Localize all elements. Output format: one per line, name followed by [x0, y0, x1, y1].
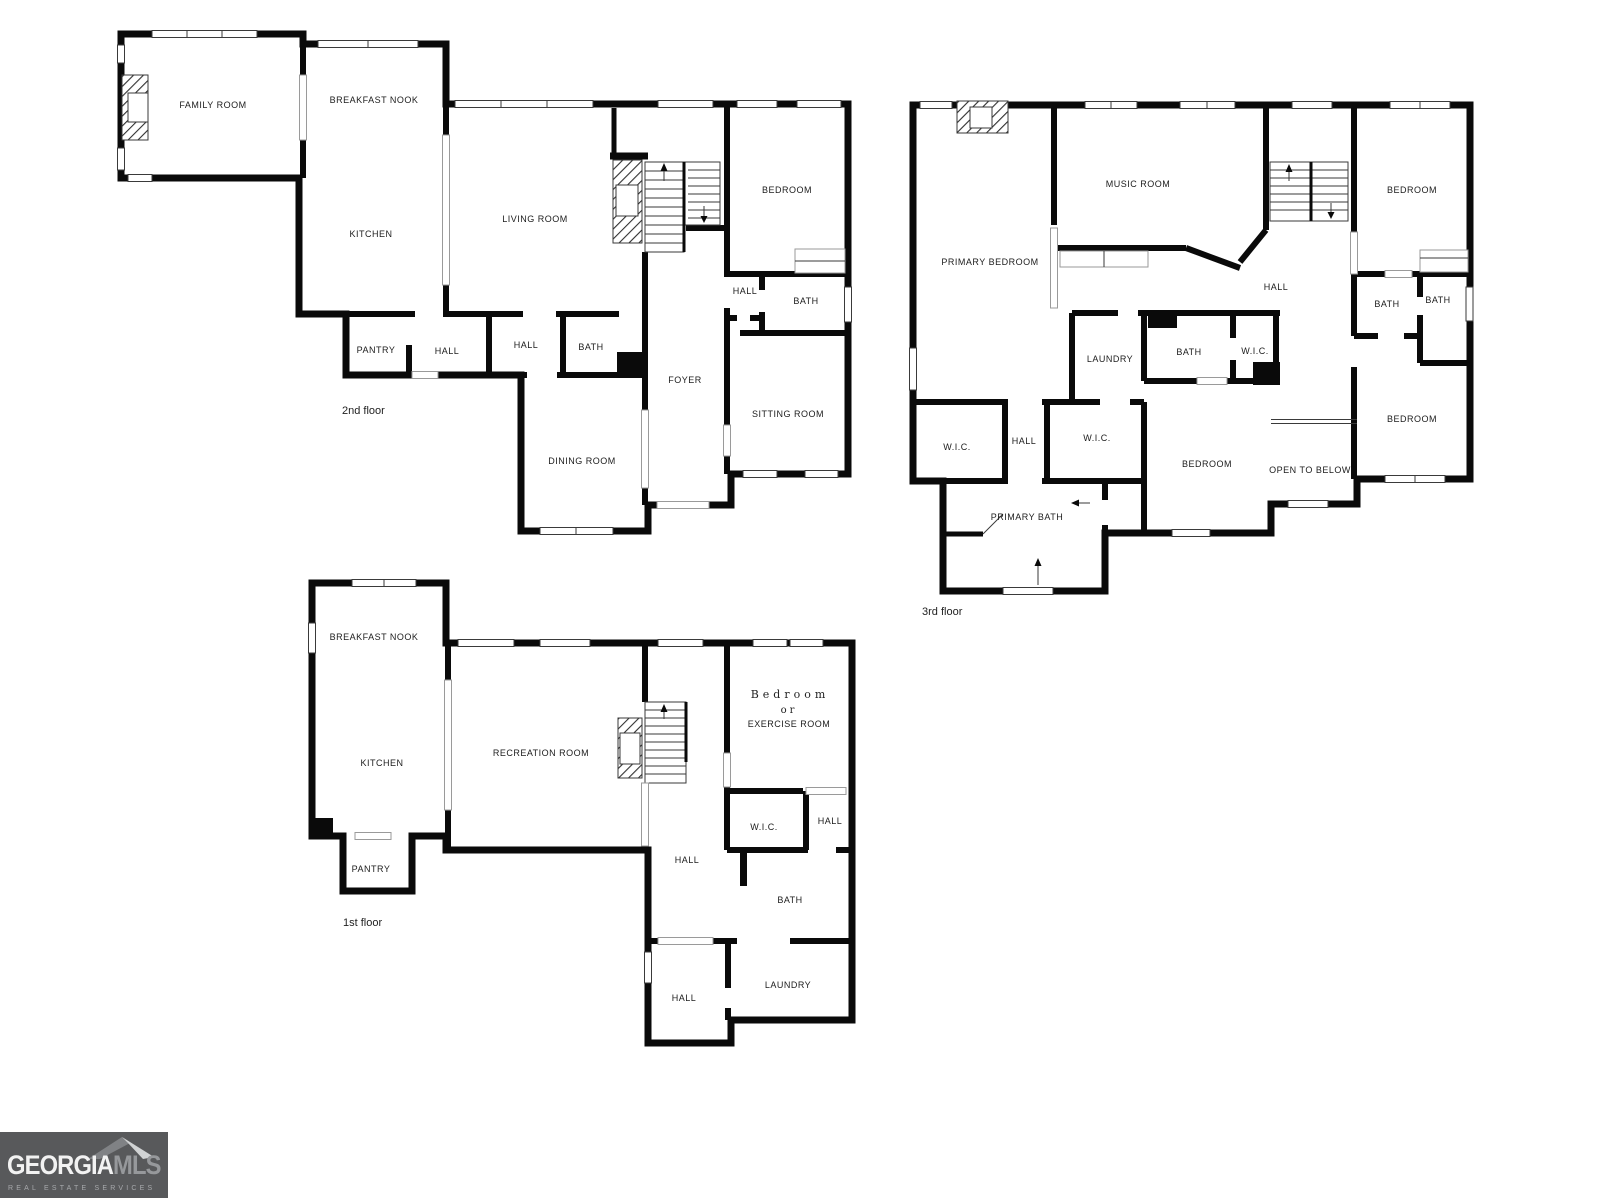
room-label-bath-center: BATH — [1176, 347, 1201, 357]
room-labels-1st: BREAKFAST NOOK KITCHEN PANTRY RECREATION… — [330, 632, 843, 1003]
logo-brand: GEORGIAMLS — [7, 1152, 161, 1179]
room-label-dining-room: DINING ROOM — [548, 456, 616, 466]
room-label-bath-bedroom: BATH — [793, 296, 818, 306]
floor-plan-canvas: FAMILY ROOM BREAKFAST NOOK KITCHEN LIVIN… — [0, 0, 1600, 1200]
room-label-pantry: PANTRY — [357, 345, 396, 355]
floor-plan-3rd: PRIMARY BEDROOM MUSIC ROOM BEDROOM HALL … — [910, 101, 1474, 618]
walls-1st — [310, 583, 852, 1043]
room-label-wic: W.I.C. — [750, 822, 778, 832]
room-label-laundry: LAUNDRY — [765, 980, 811, 990]
room-label-bedroom: BEDROOM — [762, 185, 812, 195]
room-label-bath: BATH — [578, 342, 603, 352]
room-label-hall-e: HALL — [818, 816, 843, 826]
room-label-open-to-below: OPEN TO BELOW — [1269, 465, 1351, 475]
floor-plan-2nd: FAMILY ROOM BREAKFAST NOOK KITCHEN LIVIN… — [118, 31, 852, 535]
room-label-kitchen: KITCHEN — [360, 758, 403, 768]
room-label-primary-bath: PRIMARY BATH — [991, 512, 1064, 522]
stairs-3rd — [1270, 162, 1348, 221]
room-label-living-room: LIVING ROOM — [502, 214, 568, 224]
room-label-sitting-room: SITTING ROOM — [752, 409, 824, 419]
room-label-hall-a: HALL — [435, 346, 460, 356]
room-label-kitchen: KITCHEN — [349, 229, 392, 239]
floor-label-1st: 1st floor — [343, 917, 382, 929]
room-labels-3rd: PRIMARY BEDROOM MUSIC ROOM BEDROOM HALL … — [922, 179, 1451, 618]
room-label-primary-bedroom: PRIMARY BEDROOM — [941, 257, 1038, 267]
room-label-hall: HALL — [1264, 282, 1289, 292]
room-label-foyer: FOYER — [668, 375, 702, 385]
stairs-down-arrow-icon — [1328, 212, 1335, 219]
room-label-bedroom-or-line1: Bedroom — [751, 688, 830, 701]
room-label-bath-e2: BATH — [1425, 295, 1450, 305]
room-label-wic-mid: W.I.C. — [1083, 433, 1111, 443]
stairs-down-arrow-icon — [701, 216, 708, 223]
room-label-hall-s: HALL — [672, 993, 697, 1003]
room-label-hall-b: HALL — [514, 340, 539, 350]
georgia-mls-logo: GEORGIAMLS REAL ESTATE SERVICES — [0, 1132, 168, 1198]
stairs-1st — [618, 702, 686, 783]
room-label-breakfast-nook: BREAKFAST NOOK — [330, 632, 419, 642]
room-label-family-room: FAMILY ROOM — [179, 100, 246, 110]
room-label-wic-center: W.I.C. — [1241, 346, 1269, 356]
room-label-bedroom-ne: BEDROOM — [1387, 185, 1437, 195]
room-label-hall-w: HALL — [1012, 436, 1037, 446]
stairs-up-arrow-icon — [1286, 164, 1293, 172]
stairs-up-arrow-icon — [661, 704, 668, 712]
floor-label-3rd: 3rd floor — [922, 606, 963, 618]
room-label-wic-w: W.I.C. — [943, 442, 971, 452]
room-label-laundry: LAUNDRY — [1087, 354, 1133, 364]
logo-tagline: REAL ESTATE SERVICES — [8, 1185, 155, 1192]
room-label-breakfast-nook: BREAKFAST NOOK — [330, 95, 419, 105]
stairs-2nd — [613, 160, 720, 252]
floor-plan-1st: BREAKFAST NOOK KITCHEN PANTRY RECREATION… — [309, 580, 853, 1044]
logo-brand-secondary: MLS — [113, 1150, 161, 1180]
room-label-exercise-room: EXERCISE ROOM — [748, 719, 831, 729]
room-label-hall-bedroom: HALL — [733, 286, 758, 296]
stairs-up-arrow-icon — [661, 163, 668, 171]
room-label-recreation-room: RECREATION ROOM — [493, 748, 589, 758]
room-label-bedroom-s: BEDROOM — [1182, 459, 1232, 469]
room-label-bath-e1: BATH — [1374, 299, 1399, 309]
room-label-bath: BATH — [777, 895, 802, 905]
floorplan-page: FAMILY ROOM BREAKFAST NOOK KITCHEN LIVIN… — [0, 0, 1600, 1200]
fireplace-2nd — [122, 75, 148, 140]
logo-brand-primary: GEORGIA — [7, 1150, 113, 1180]
room-label-bedroom-se: BEDROOM — [1387, 414, 1437, 424]
room-label-bedroom-or-line2: or — [781, 705, 798, 716]
room-label-pantry: PANTRY — [352, 864, 391, 874]
floor-label-2nd: 2nd floor — [342, 405, 385, 417]
chimney-3rd — [957, 101, 1008, 133]
room-label-hall-center: HALL — [675, 855, 700, 865]
room-label-music-room: MUSIC ROOM — [1106, 179, 1171, 189]
